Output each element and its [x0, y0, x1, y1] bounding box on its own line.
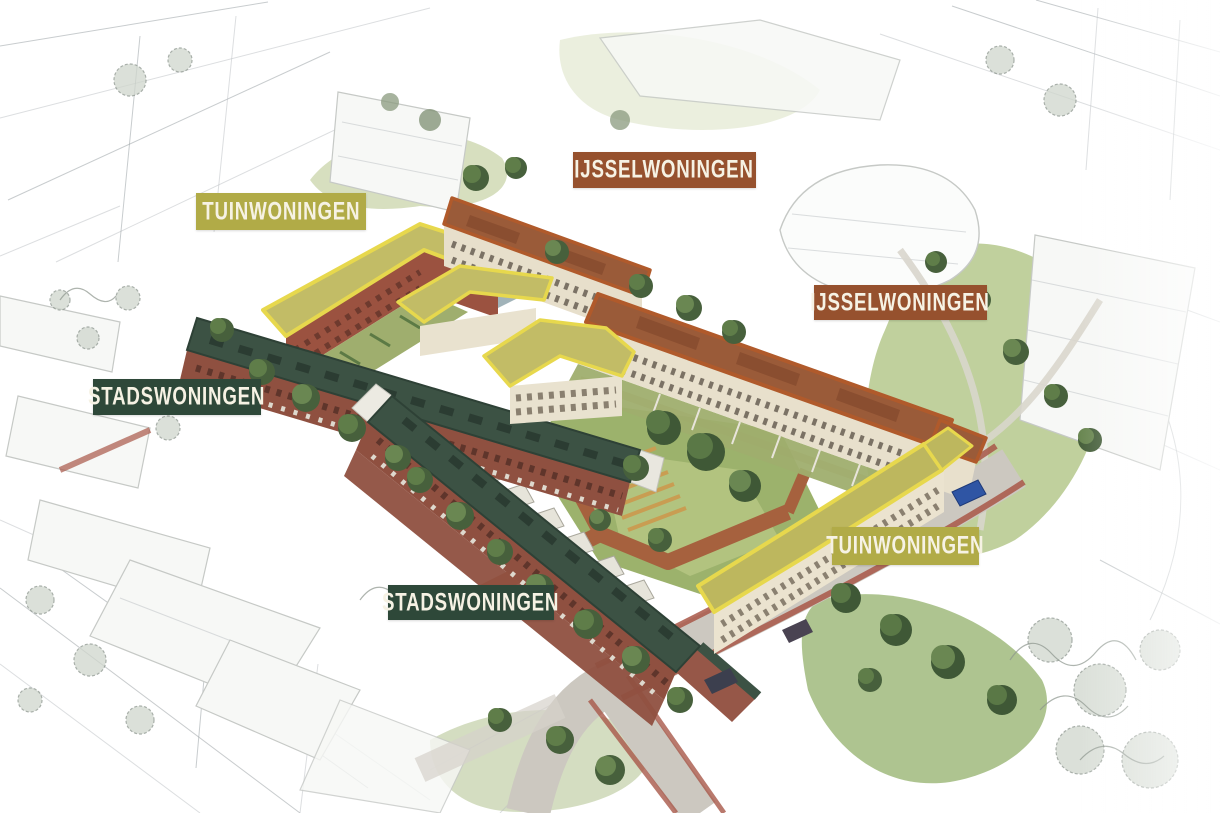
label-text: TUINWONINGEN: [202, 197, 360, 226]
label-text: TUINWONINGEN: [826, 531, 984, 560]
label-text: STADSWONINGEN: [382, 588, 559, 617]
label-tuinwoningen-nw: TUINWONINGEN: [196, 193, 366, 230]
label-text: IJSSELWONINGEN: [575, 155, 754, 184]
label-stadswoningen-bottom: STADSWONINGEN: [388, 585, 554, 620]
edge-fade: [1080, 0, 1220, 813]
label-text: STADSWONINGEN: [88, 382, 265, 411]
site-illustration: TUINWONINGEN IJSSELWONINGEN IJSSELWONING…: [0, 0, 1220, 813]
label-stadswoningen-left: STADSWONINGEN: [93, 379, 261, 415]
label-ijsselwoningen-right: IJSSELWONINGEN: [814, 285, 987, 320]
label-ijsselwoningen-top: IJSSELWONINGEN: [573, 152, 756, 188]
label-tuinwoningen-se: TUINWONINGEN: [832, 527, 979, 565]
label-text: IJSSELWONINGEN: [811, 288, 990, 317]
